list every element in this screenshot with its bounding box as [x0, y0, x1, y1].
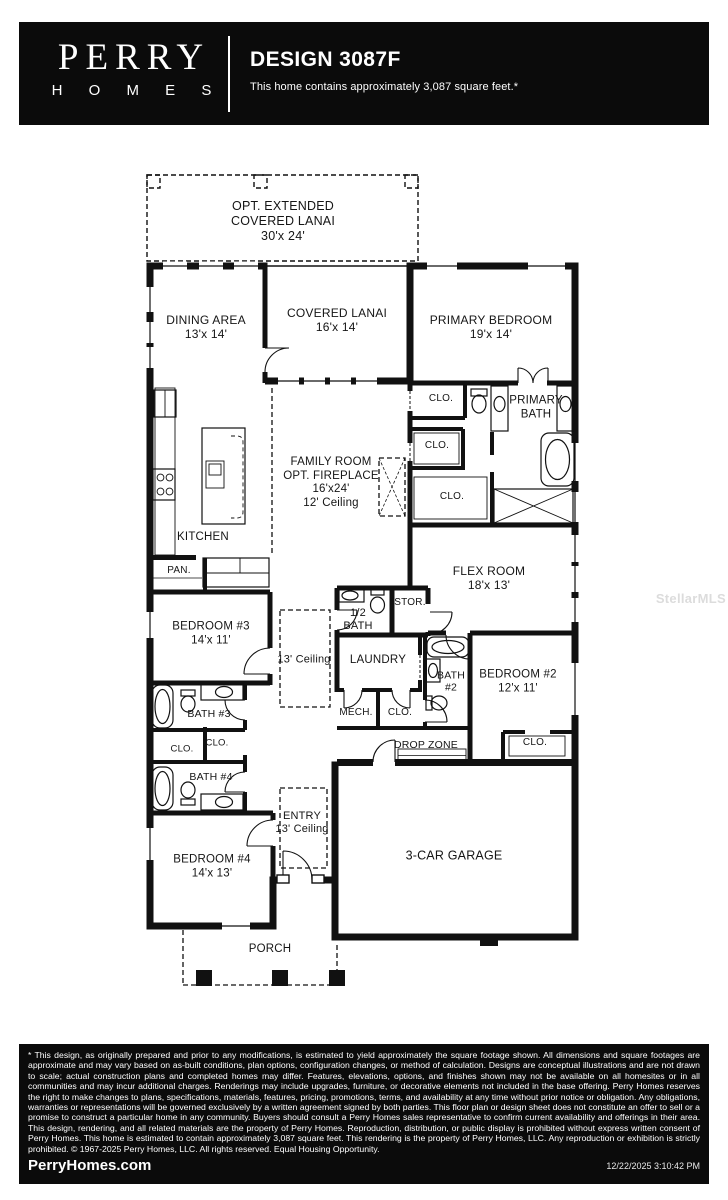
room-label-storage: STOR. [394, 597, 425, 609]
room-label-clo-1: CLO. [429, 393, 453, 405]
room-label-bath3: BATH #3 [187, 708, 230, 720]
footer: * This design, as originally prepared an… [19, 1044, 709, 1184]
room-label-bath2: BATH #2 [437, 670, 465, 695]
room-label-porch: PORCH [249, 943, 292, 957]
room-label-clo-6: CLO. [388, 707, 412, 719]
room-label-drop-zone: DROP ZONE [394, 739, 458, 751]
room-label-entry: ENTRY 13' Ceiling [275, 810, 328, 836]
room-label-clo-2: CLO. [425, 440, 449, 452]
room-label-bedroom3: BEDROOM #3 14'x 11' [172, 620, 249, 647]
room-label-clo-3: CLO. [440, 491, 464, 503]
room-label-covered-lanai: COVERED LANAI 16'x 14' [287, 306, 387, 334]
room-label-bedroom2: BEDROOM #2 12'x 11' [479, 668, 556, 695]
room-label-pantry: PAN. [167, 565, 190, 577]
print-timestamp: 12/22/2025 3:10:42 PM [606, 1161, 700, 1171]
room-label-bath4: BATH #4 [189, 771, 232, 783]
room-label-half-bath: 1/2 BATH [343, 607, 372, 633]
stellar-mls-watermark: StellarMLS [650, 591, 726, 606]
room-label-hall-ceiling: 13' Ceiling [277, 654, 330, 667]
room-label-clo-7: CLO. [523, 737, 547, 749]
floor-plan-drawing [0, 0, 728, 1200]
room-label-bedroom4: BEDROOM #4 14'x 13' [173, 853, 250, 880]
room-label-flex-room: FLEX ROOM 18'x 13' [453, 564, 525, 592]
room-label-laundry: LAUNDRY [350, 654, 406, 668]
room-label-primary-bedroom: PRIMARY BEDROOM 19'x 14' [430, 313, 553, 341]
room-label-clo-5: CLO. [206, 737, 229, 748]
room-label-opt-lanai: OPT. EXTENDED COVERED LANAI 30'x 24' [231, 199, 335, 243]
room-label-garage: 3-CAR GARAGE [406, 849, 503, 864]
legal-disclaimer: * This design, as originally prepared an… [28, 1050, 700, 1154]
room-label-clo-4: CLO. [171, 743, 194, 754]
website-link[interactable]: PerryHomes.com [28, 1157, 151, 1174]
room-label-family-room: FAMILY ROOM OPT. FIREPLACE 16'x24' 12' C… [283, 456, 378, 510]
floor-plan: OPT. EXTENDED COVERED LANAI 30'x 24' DIN… [0, 0, 728, 1200]
room-label-mech: MECH. [339, 707, 372, 719]
room-label-primary-bath: PRIMARY BATH [509, 394, 563, 421]
design-sheet: PERRY H O M E S DESIGN 3087F This home c… [0, 0, 728, 1200]
room-label-kitchen: KITCHEN [177, 531, 229, 545]
room-label-dining: DINING AREA 13'x 14' [166, 313, 246, 341]
